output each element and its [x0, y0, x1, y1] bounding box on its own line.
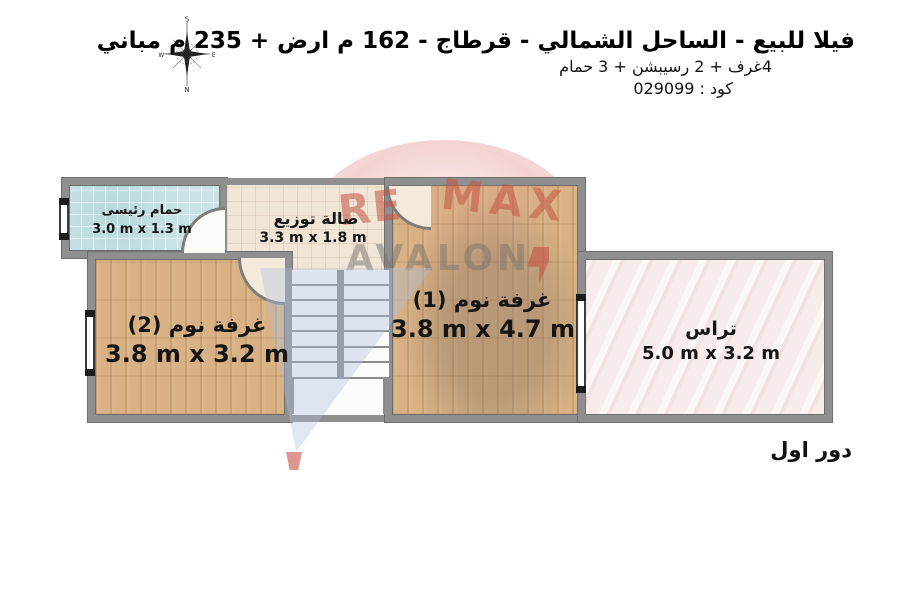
terrace-dims-label: 5.0 m x 3.2 m	[642, 343, 780, 364]
bathroom-dims-label: 3.0 m x 1.3 m	[92, 222, 192, 237]
bathroom-name-label: حمام رئيسى	[101, 203, 182, 218]
hall-dims-label: 3.3 m x 1.8 m	[259, 230, 366, 246]
stair-tread	[344, 332, 389, 346]
terrace-name-label: تراس	[685, 318, 737, 340]
stair-tread	[292, 286, 337, 300]
stairs	[292, 270, 385, 377]
stair-landing	[292, 377, 385, 414]
stair-tread	[344, 301, 389, 315]
page-title: فيلا للبيع - الساحل الشمالي - قرطاج - 16…	[97, 28, 855, 54]
stair-tread	[344, 270, 389, 284]
bedroom-1-name-label: غرفة نوم (1)	[413, 288, 552, 312]
page-subtitle: 4غرف + 2 رسيبشن + 3 حمام	[559, 57, 772, 76]
bedroom-1-dims-label: 3.8 m x 4.7 m	[391, 315, 575, 343]
stair-tread	[344, 317, 389, 331]
stair-tread	[344, 286, 389, 300]
floor-plan-page: S N E W فيلا للبيع - الساحل الشمالي - قر…	[0, 0, 900, 599]
compass-bottom-letter: N	[185, 86, 190, 92]
listing-code: كود : 029099	[633, 79, 733, 98]
bedroom-2-name-label: غرفة نوم (2)	[128, 313, 267, 337]
watermark-balloon-basket	[284, 452, 304, 470]
stair-tread	[344, 348, 389, 362]
stair-tread	[292, 301, 337, 315]
hall-name-label: صالة توزيع	[274, 209, 359, 228]
stair-tread	[292, 348, 337, 362]
stair-tread	[292, 332, 337, 346]
stair-tread	[344, 363, 389, 377]
bedroom-2-dims-label: 3.8 m x 3.2 m	[105, 340, 289, 368]
stair-tread	[292, 363, 337, 377]
stair-tread	[292, 317, 337, 331]
window-bedroom-1-terrace	[576, 295, 586, 392]
compass-top-letter: S	[185, 16, 189, 24]
window-bedroom-2	[85, 311, 95, 375]
floor-level-label: دور اول	[770, 438, 852, 462]
window-bathroom	[59, 199, 69, 239]
stair-tread	[292, 270, 337, 284]
